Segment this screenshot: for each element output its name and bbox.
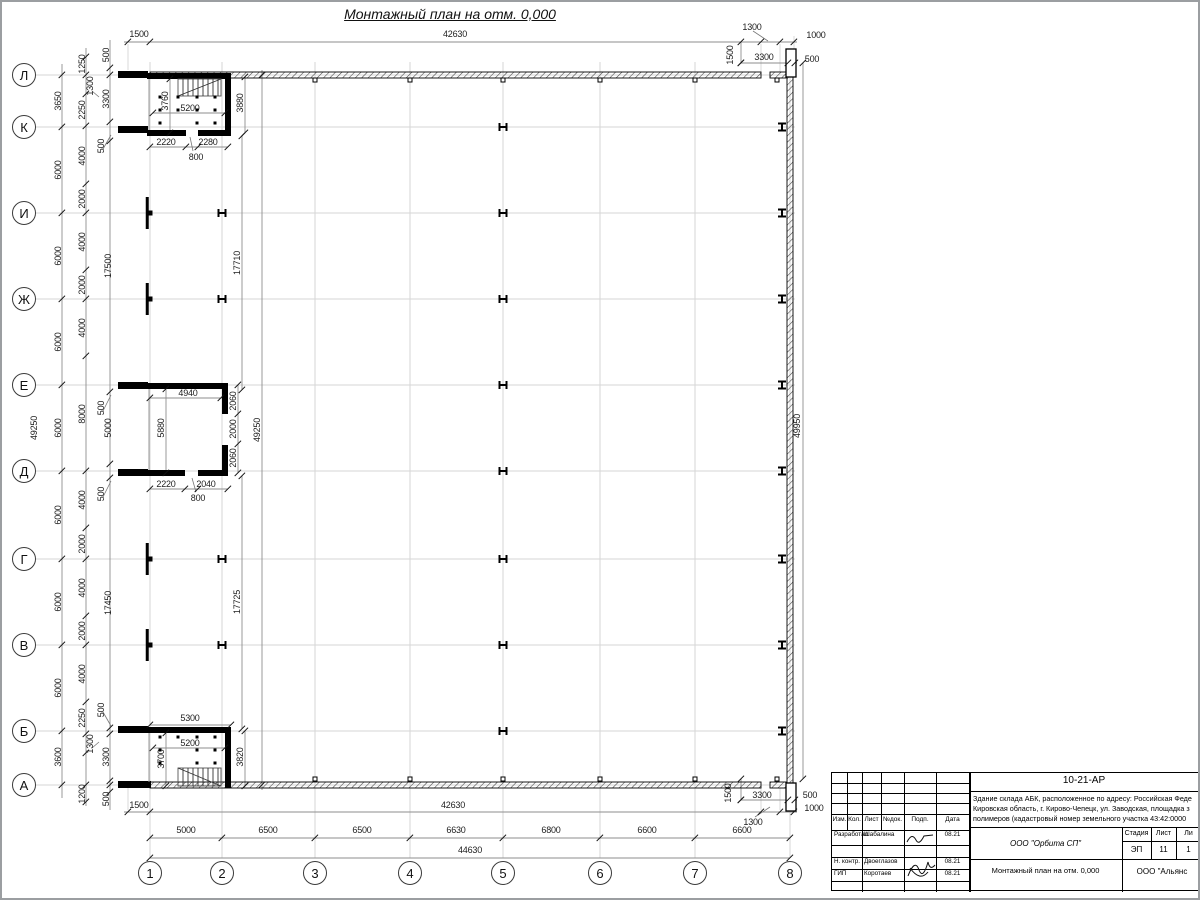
titleblock-sheets-value: 1 (1176, 845, 1200, 854)
titleblock-sheet-title: Монтажный план на отм. 0,000 (970, 866, 1121, 875)
wall-column-marker (693, 78, 698, 83)
dimension-label: 4000 (77, 318, 87, 337)
facade-column-symbol (148, 211, 153, 216)
grid-axis-bubble: В (12, 633, 36, 657)
steel-column-symbol (499, 123, 508, 131)
wall-column-marker (501, 78, 506, 83)
pile-dot (214, 736, 217, 739)
dimension-label: 2250 (77, 100, 87, 119)
dimension-label: 6000 (53, 418, 63, 437)
wall-column-marker (501, 777, 506, 782)
pile-dot (177, 736, 180, 739)
steel-column-symbol (218, 555, 227, 563)
titleblock-org: ООО "Орбита СП" (970, 839, 1121, 848)
facade-column-symbol (148, 643, 153, 648)
titleblock-col-ndok: №док. (881, 816, 904, 823)
dimension-label: 6600 (732, 825, 751, 835)
dimension-label: 2000 (77, 621, 87, 640)
dimension-label: 49250 (29, 416, 39, 440)
pile-dot (159, 122, 162, 125)
dimension-label: 500 (96, 139, 106, 153)
dimension-label: 6800 (541, 825, 560, 835)
pile-dot (159, 736, 162, 739)
dimension-label: 5200 (180, 738, 199, 748)
dimension-label: 44630 (458, 845, 482, 855)
dimension-label: 500 (96, 401, 106, 415)
dimension-label: 2220 (156, 479, 175, 489)
dimension-label: 5000 (176, 825, 195, 835)
dimension-label: 8000 (77, 404, 87, 423)
wall-column-marker (598, 777, 603, 782)
dimension-label: 4000 (77, 146, 87, 165)
dimension-label: 5880 (156, 418, 166, 437)
titleblock-name: Двоеглазов (864, 858, 904, 865)
dimension-label: 800 (191, 493, 205, 503)
titleblock-role: Разработал (834, 831, 864, 838)
dimension-label: 49950 (792, 414, 802, 438)
titleblock-sheets-header: Ли (1176, 830, 1200, 837)
grid-axis-bubble: Г (12, 547, 36, 571)
grid-axis-bubble: 8 (778, 861, 802, 885)
steel-column-symbol (499, 641, 508, 649)
steel-column-symbol (499, 381, 508, 389)
dimension-label: 6000 (53, 332, 63, 351)
titleblock-doc-number: 10-21-АР (969, 775, 1199, 786)
grid-axis-bubble: Б (12, 719, 36, 743)
dimension-label: 1500 (129, 29, 148, 39)
dimension-label: 2280 (198, 137, 217, 147)
titleblock-date: 08.21 (936, 870, 969, 877)
dimension-label: 5000 (103, 418, 113, 437)
dimension-label: 6000 (53, 246, 63, 265)
pile-dot (214, 109, 217, 112)
titleblock-sheet-value: 11 (1151, 845, 1176, 854)
grid-lines (36, 62, 795, 858)
titleblock-role: ГИП (834, 870, 864, 877)
steel-column-symbol (778, 555, 786, 564)
dimension-label: 3300 (754, 52, 773, 62)
steel-column-symbol (778, 467, 786, 476)
titleblock: 10-21-АР Здание склада АБК, расположенно… (831, 772, 1200, 891)
wall-column-marker (313, 777, 318, 782)
dimension-label: 500 (96, 487, 106, 501)
dimension-label: 3880 (235, 93, 245, 112)
dimension-label: 3300 (101, 747, 111, 766)
dimension-label: 42630 (443, 29, 467, 39)
dimension-label: 42630 (441, 800, 465, 810)
grid-axis-bubble: 7 (683, 861, 707, 885)
dimension-label: 17500 (103, 254, 113, 278)
steel-column-symbol (499, 295, 508, 303)
titleblock-description-line: полимеров (кадастровый номер земельного … (973, 814, 1186, 823)
grid-axis-bubble: К (12, 115, 36, 139)
pile-dot (214, 762, 217, 765)
grid-axis-bubble: Д (12, 459, 36, 483)
pile-dot (196, 762, 199, 765)
steel-column-symbol (499, 467, 508, 475)
dimension-label: 4940 (178, 388, 197, 398)
pile-dot (196, 736, 199, 739)
titleblock-description-line: Здание склада АБК, расположенное по адре… (973, 794, 1192, 803)
dimension-label: 2060 (228, 448, 238, 467)
dimension-label: 6000 (53, 160, 63, 179)
dimension-label: 2000 (77, 534, 87, 553)
dimension-label: 3700 (156, 749, 166, 768)
titleblock-col-data: Дата (936, 816, 969, 823)
wall-column-marker (408, 777, 413, 782)
dimension-label: 2060 (228, 391, 238, 410)
titleblock-sheet-header: Лист (1151, 830, 1176, 837)
dimension-label: 2000 (228, 419, 238, 438)
plan-linework (0, 0, 1200, 900)
titleblock-firm: ООО "Альянс (1123, 867, 1200, 876)
steel-column-symbol (499, 555, 508, 563)
dimension-label: 4000 (77, 232, 87, 251)
grid-axis-bubble: Ж (12, 287, 36, 311)
titleblock-description-line: Кировская область, г. Кирово-Чепецк, ул.… (973, 804, 1190, 813)
signature (904, 830, 936, 890)
titleblock-col-list: Лист (862, 816, 881, 823)
pile-dot (159, 762, 162, 765)
steel-column-symbol (499, 209, 508, 217)
dimension-label: 17725 (232, 590, 242, 614)
dimension-label: 4000 (77, 578, 87, 597)
dimension-label: 6600 (637, 825, 656, 835)
dimension-label: 6000 (53, 505, 63, 524)
titleblock-stage-header: Стадия (1122, 830, 1151, 837)
grid-axis-bubble: 6 (588, 861, 612, 885)
dimension-label: 2000 (77, 189, 87, 208)
titleblock-name: Шабалина (864, 831, 904, 838)
facade-column-symbol (148, 297, 153, 302)
titleblock-name: Коротаев (864, 870, 904, 877)
grid-axis-bubble: 5 (491, 861, 515, 885)
grid-axis-bubble: Е (12, 373, 36, 397)
grid-axis-bubble: 2 (210, 861, 234, 885)
dimension-label: 500 (805, 54, 819, 64)
wall-column-marker (408, 78, 413, 83)
pile-dot (177, 96, 180, 99)
dimension-label: 3650 (53, 91, 63, 110)
pile-dot (214, 122, 217, 125)
titleblock-role: Н. контр. (834, 858, 864, 865)
dimension-label: 1300 (742, 22, 761, 32)
dimension-label: 49250 (252, 418, 262, 442)
dimension-label: 2220 (156, 137, 175, 147)
pile-dot (196, 122, 199, 125)
grid-axis-bubble: А (12, 773, 36, 797)
dimension-label: 3820 (235, 747, 245, 766)
dimension-label: 500 (96, 703, 106, 717)
dimension-label: 6000 (53, 592, 63, 611)
grid-axis-bubble: И (12, 201, 36, 225)
dimension-label: 3300 (752, 790, 771, 800)
top-wall (150, 72, 761, 78)
pile-dot (177, 109, 180, 112)
steel-column-symbol (778, 641, 786, 650)
pile-dot (159, 109, 162, 112)
titleblock-col-kol: Кол. (847, 816, 862, 823)
dimension-label: 2000 (77, 275, 87, 294)
dimension-label: 3300 (101, 89, 111, 108)
dimension-label: 1500 (129, 800, 148, 810)
dimension-label: 17710 (232, 251, 242, 275)
left-wall-stubs (118, 71, 151, 788)
steel-column-symbol (218, 641, 227, 649)
dimension-label: 5300 (180, 713, 199, 723)
pile-dot (196, 96, 199, 99)
dimension-label: 500 (803, 790, 817, 800)
steel-column-symbol (778, 123, 786, 132)
wall-column-marker (693, 777, 698, 782)
dimension-label: 2250 (77, 708, 87, 727)
dimension-label: 4000 (77, 664, 87, 683)
dimension-label: 1500 (723, 783, 733, 802)
pile-dot (196, 109, 199, 112)
titleblock-stage-value: ЭП (1122, 845, 1151, 854)
facade-column-symbol (148, 557, 153, 562)
steel-column-symbol (499, 727, 508, 735)
steel-column-symbol (778, 209, 786, 218)
dimension-label: 1500 (725, 45, 735, 64)
pile-dot (214, 96, 217, 99)
pile-dot (214, 749, 217, 752)
pile-dot (159, 96, 162, 99)
steel-column-symbol (218, 295, 227, 303)
titleblock-col-izm: Изм. (832, 816, 847, 823)
titleblock-col-podp: Подп. (904, 816, 936, 823)
titleblock-date: 08.21 (936, 858, 969, 865)
grid-axis-bubble: Л (12, 63, 36, 87)
grid-axis-bubble: 4 (398, 861, 422, 885)
grid-axis-bubble: 3 (303, 861, 327, 885)
dimension-label: 1000 (804, 803, 823, 813)
dimension-label: 1000 (806, 30, 825, 40)
dimension-lines (62, 40, 803, 858)
steel-column-symbol (778, 381, 786, 390)
dimension-label: 6000 (53, 678, 63, 697)
steel-column-symbol (778, 727, 786, 736)
dimension-label: 3760 (160, 91, 170, 110)
titleblock-date: 08.21 (936, 831, 969, 838)
wall-column-marker (598, 78, 603, 83)
wall-column-marker (313, 78, 318, 83)
dimension-label: 3600 (53, 747, 63, 766)
dimension-label: 6630 (446, 825, 465, 835)
dimension-label: 6500 (352, 825, 371, 835)
steel-column-symbol (218, 209, 227, 217)
wall-column-marker (775, 78, 780, 83)
wall-column-marker (775, 777, 780, 782)
building-walls (118, 49, 796, 811)
dimension-label: 17450 (103, 591, 113, 615)
drawing-sheet: Монтажный план на отм. 0,000 (0, 0, 1200, 900)
pile-dot (196, 749, 199, 752)
dimension-label: 4000 (77, 490, 87, 509)
pile-dot (159, 749, 162, 752)
stairs-top (178, 79, 221, 96)
steel-column-symbol (778, 295, 786, 304)
dimension-label: 800 (189, 152, 203, 162)
dimension-label: 500 (101, 48, 111, 62)
grid-axis-bubble: 1 (138, 861, 162, 885)
dimension-label: 6500 (258, 825, 277, 835)
